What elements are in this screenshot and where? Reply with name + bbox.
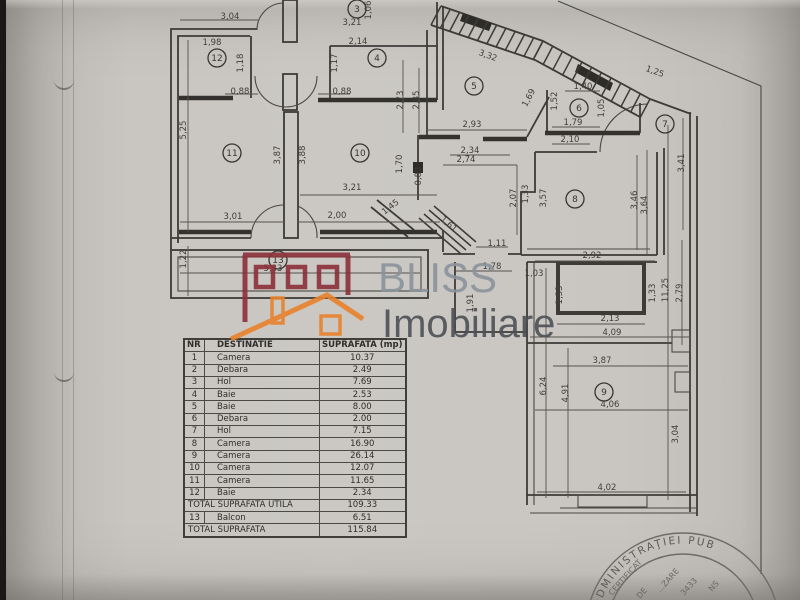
table-cell: 10 (184, 462, 205, 474)
room-number-badge: 10 (351, 144, 369, 162)
table-row: 7Hol7.15 (184, 426, 406, 438)
table-row: 4Baie2.53 (184, 389, 406, 401)
dimension-label: 3,04 (671, 425, 681, 444)
stamp-fragment-text: ...ZARE (655, 567, 681, 595)
table-cell: Camera (205, 475, 320, 487)
table-cell: 8 (184, 438, 205, 450)
stamp-fragment-text: 3433 (679, 576, 699, 597)
stamp-fragment-text: NS (707, 579, 721, 593)
svg-text:12: 12 (211, 54, 222, 64)
dimension-label: 11,25 (661, 278, 671, 302)
table-cell: 2.53 (320, 389, 406, 401)
dimension-label: 2,74 (457, 155, 476, 165)
svg-text:9: 9 (601, 388, 607, 398)
dimension-label: 1,91 (466, 294, 476, 313)
table-cell: 9 (184, 450, 205, 462)
table-cell: 11.65 (320, 475, 406, 487)
svg-text:11: 11 (226, 149, 237, 159)
dimension-label: 2,13 (601, 314, 620, 324)
table-row: 11Camera11.65 (184, 475, 406, 487)
col-header-suprafata: SUPRAFATA (mp) (320, 339, 406, 352)
table-cell: 13 (184, 512, 205, 524)
table-cell: 4 (184, 389, 205, 401)
svg-text:4: 4 (374, 54, 380, 64)
dimension-label: 2,07 (509, 189, 519, 208)
dimension-label: 3,04 (221, 12, 240, 22)
table-cell: 6.51 (320, 512, 406, 524)
dimension-label: 0,83 (414, 167, 424, 186)
table-cell: 2 (184, 364, 205, 376)
round-stamp: ADMINISTRAŢIEI PUB CERTIFICATDE...ZARE34… (586, 533, 780, 600)
table-row: NRDESTINATIESUPRAFATA (mp) (184, 339, 406, 352)
room-number-badge: 7 (656, 115, 674, 133)
table-cell: 11 (184, 475, 205, 487)
room-number-badge: 4 (368, 49, 386, 67)
dimension-label: 6,24 (539, 377, 549, 396)
table-row: 10Camera12.07 (184, 462, 406, 474)
dimension-label: 3,57 (539, 189, 549, 208)
table-cell: 16.90 (320, 438, 406, 450)
room-area-table: NRDESTINATIESUPRAFATA (mp)1Camera10.372D… (183, 338, 407, 538)
dimension-label: 2,93 (463, 120, 482, 130)
table-row: TOTAL SUPRAFATA UTILA109.33 (184, 499, 406, 511)
table-row: 6Debara2.00 (184, 413, 406, 425)
dimension-label: 3,46 (630, 191, 640, 210)
table-cell: 1 (184, 352, 205, 364)
dimension-label: 1,78 (483, 262, 502, 272)
col-header-nr: NR (184, 339, 205, 352)
dimension-label: 2,92 (583, 251, 602, 261)
table-row: TOTAL SUPRAFATA115.84 (184, 524, 406, 537)
room-number-badge: 12 (208, 49, 226, 67)
dimension-label: 3,21 (343, 18, 362, 28)
table-cell: 7.15 (320, 426, 406, 438)
dimension-label: 3,41 (677, 154, 687, 173)
table-row: 1Camera10.37 (184, 352, 406, 364)
scanned-floor-plan-page: 3,041,063,211,982,141,181,170,880,885,25… (0, 0, 800, 600)
svg-text:13: 13 (272, 256, 283, 266)
table-cell: 2.49 (320, 364, 406, 376)
table-row: 3Hol7.69 (184, 376, 406, 388)
dimension-label: 2,73 (396, 91, 406, 110)
table-cell: 2.34 (320, 487, 406, 499)
dimension-label: 3,01 (224, 212, 243, 222)
room-number-badge: 6 (570, 99, 588, 117)
table-cell: Camera (205, 352, 320, 364)
table-cell: 7 (184, 426, 205, 438)
table-cell: 10.37 (320, 352, 406, 364)
table-cell: Baie (205, 389, 320, 401)
total-label: TOTAL SUPRAFATA (184, 524, 320, 537)
dimension-label: 1,33 (648, 284, 658, 303)
table-row: 5Baie8.00 (184, 401, 406, 413)
dimension-label: 1,33 (555, 286, 565, 305)
dimension-label: 3,88 (298, 146, 308, 165)
dimension-label: 3,21 (343, 183, 362, 193)
dimension-label: 4,91 (561, 384, 571, 403)
table-cell: 12.07 (320, 462, 406, 474)
svg-text:6: 6 (576, 104, 582, 114)
table-row: 12Baie2.34 (184, 487, 406, 499)
dimension-label: 0,88 (333, 87, 352, 97)
dimension-label: 1,40 (574, 82, 593, 92)
svg-text:3: 3 (354, 5, 360, 15)
table-cell: Hol (205, 426, 320, 438)
table-cell: Debara (205, 364, 320, 376)
total-value: 115.84 (320, 524, 406, 537)
svg-text:10: 10 (354, 149, 366, 159)
table-cell: Hol (205, 376, 320, 388)
dimension-label: 1,69 (520, 87, 538, 108)
dimension-label: 1,98 (203, 38, 222, 48)
room-number-badge: 9 (595, 383, 613, 401)
svg-text:5: 5 (471, 82, 477, 92)
dimension-label: 1,33 (521, 185, 531, 204)
dimension-label: 2,79 (675, 284, 685, 303)
dimension-label: 1,61 (438, 214, 459, 234)
dimension-label: 0,88 (231, 87, 250, 97)
table-cell: 12 (184, 487, 205, 499)
table-row: 13Balcon6.51 (184, 512, 406, 524)
room-area-table-wrap: NRDESTINATIESUPRAFATA (mp)1Camera10.372D… (183, 338, 407, 538)
table-cell: 8.00 (320, 401, 406, 413)
room-number-badge: 8 (566, 190, 584, 208)
dimension-label: 1,22 (179, 250, 189, 269)
table-cell: 5 (184, 401, 205, 413)
dimension-label: 4,09 (603, 328, 622, 338)
room-number-badge: 5 (465, 77, 483, 95)
dimension-label: 1,18 (236, 54, 246, 73)
table-cell: Camera (205, 450, 320, 462)
dimension-label: 1,70 (395, 155, 405, 174)
svg-text:8: 8 (572, 195, 578, 205)
table-row: 9Camera26.14 (184, 450, 406, 462)
table-cell: Camera (205, 462, 320, 474)
table-cell: 26.14 (320, 450, 406, 462)
dimension-label: 1,17 (330, 54, 340, 73)
dimension-label: 1,79 (564, 118, 583, 128)
dimension-label: 1,05 (597, 99, 607, 118)
table-cell: 6 (184, 413, 205, 425)
total-utila-value: 109.33 (320, 499, 406, 511)
table-row: 8Camera16.90 (184, 438, 406, 450)
table-cell: 7.69 (320, 376, 406, 388)
table-cell: Camera (205, 438, 320, 450)
dimension-label: 2,10 (561, 135, 580, 145)
dimension-label: 1,11 (488, 239, 507, 249)
total-utila-label: TOTAL SUPRAFATA UTILA (184, 499, 320, 511)
table-cell: Debara (205, 413, 320, 425)
dimension-label: 3,64 (640, 196, 650, 215)
dimension-label: 4,02 (598, 483, 617, 493)
dimension-label: 3,87 (593, 356, 612, 366)
table-cell: Balcon (205, 512, 320, 524)
dimension-label: 1,25 (644, 64, 665, 80)
dimension-label: 1,03 (525, 269, 544, 279)
dimension-label: 2,00 (328, 211, 347, 221)
table-cell: Baie (205, 487, 320, 499)
dimension-label: 3,32 (477, 48, 498, 64)
stamp-fragment-text: DE (635, 586, 649, 600)
dimension-label: 2,14 (349, 37, 368, 47)
dimension-label: 1,45 (380, 198, 401, 218)
room-number-badge: 11 (223, 144, 241, 162)
table-row: 2Debara2.49 (184, 364, 406, 376)
dimension-label: 3,87 (273, 146, 283, 165)
svg-text:7: 7 (662, 120, 668, 130)
dimension-label: 1,52 (550, 92, 560, 111)
table-cell: Baie (205, 401, 320, 413)
dimension-label: 5,25 (179, 121, 189, 140)
dimension-label: 2,85 (412, 91, 422, 110)
col-header-destinatie: DESTINATIE (205, 339, 320, 352)
table-cell: 3 (184, 376, 205, 388)
table-cell: 2.00 (320, 413, 406, 425)
